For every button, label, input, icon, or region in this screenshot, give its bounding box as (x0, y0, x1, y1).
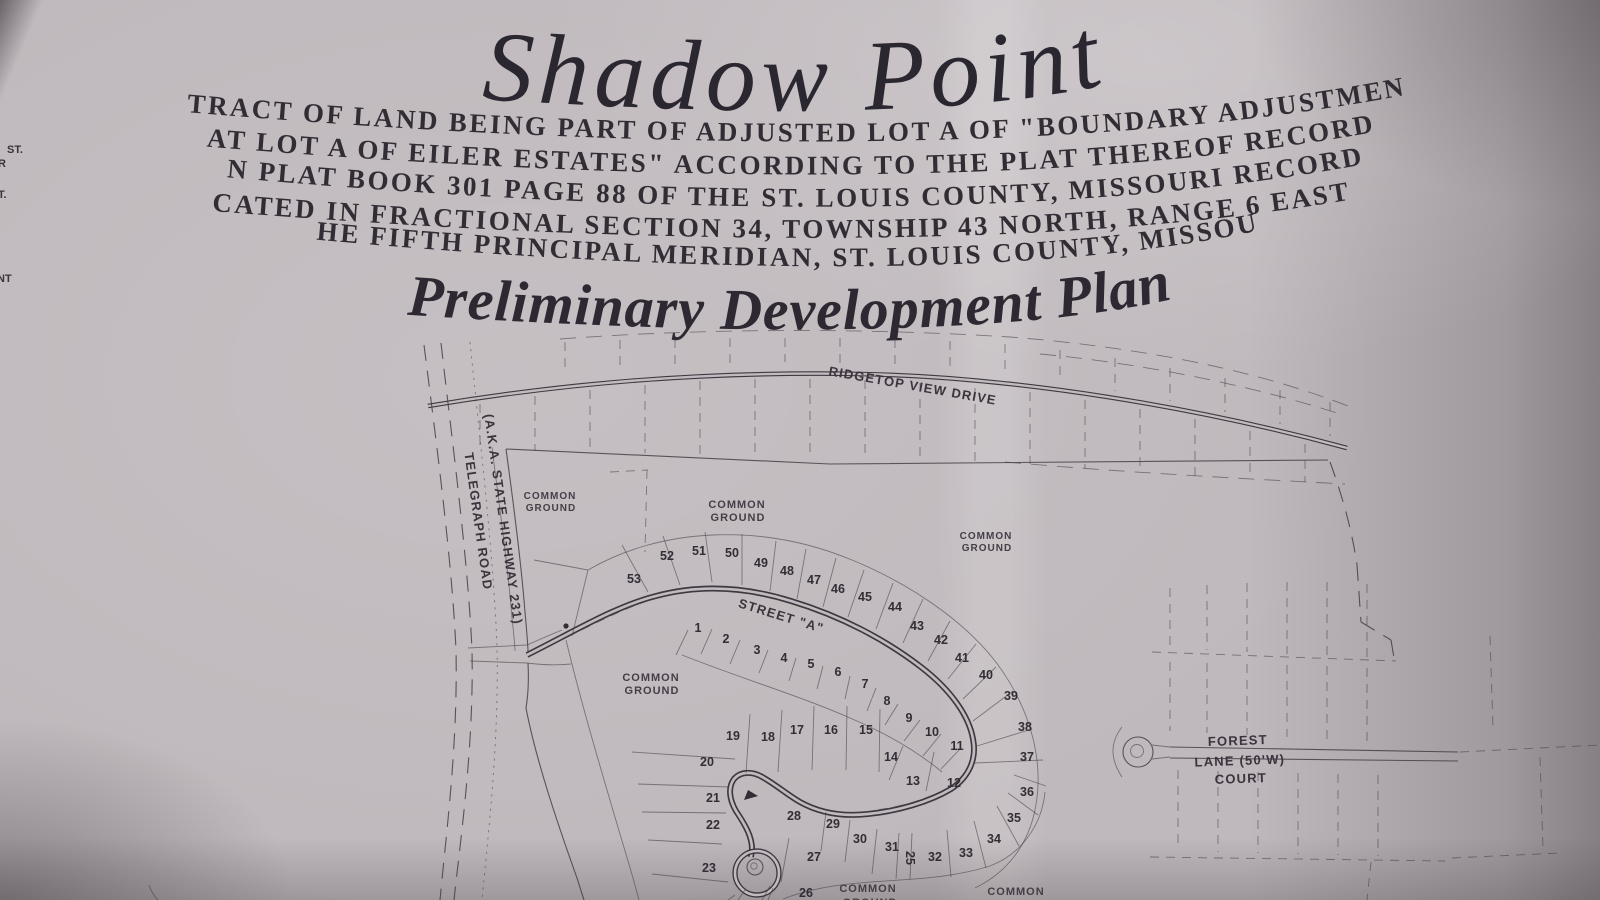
lot-number-28: 28 (787, 809, 801, 823)
cul-de-sac-island (747, 859, 763, 875)
street-dot-marking (563, 623, 568, 628)
lot-number-44: 44 (888, 600, 902, 614)
lot-number-36: 36 (1020, 785, 1034, 799)
cul-de-sac-island-center (751, 863, 757, 869)
forest-lane-court: FOREST LANE (50'W) COURT (1113, 582, 1600, 900)
lot-number-19: 19 (726, 729, 740, 743)
lot-number-33: 33 (959, 846, 973, 860)
lot-number-25: 25 (903, 851, 917, 865)
lot-number-47: 47 (807, 573, 821, 587)
lot-number-17: 17 (790, 723, 804, 737)
common-ground-ne-line2: GROUND (962, 543, 1012, 554)
lot-number-29: 29 (826, 817, 840, 831)
forest-lane-continuation (1460, 745, 1600, 752)
forest-grid-horizontal-upper (1152, 652, 1396, 661)
lot-number-40: 40 (979, 668, 993, 682)
plat-drawing-svg: Shadow Point A TRACT OF LAND BEING PART … (0, 0, 1600, 900)
far-right-faint-lines (1490, 636, 1543, 848)
lot-number-3: 3 (754, 643, 761, 657)
common-ground-south-line1: COMMON (839, 883, 896, 895)
lot-number-38: 38 (1018, 720, 1032, 734)
lot-number-50: 50 (725, 546, 739, 560)
forest-lane-label-2: LANE (50'W) (1194, 751, 1285, 769)
forest-grid-upper-tier2 (1170, 662, 1367, 741)
lot-number-53: 53 (627, 572, 641, 586)
lot-number-48: 48 (780, 564, 794, 578)
street-a-label: STREET "A" (737, 596, 826, 636)
telegraph-aka-label: (A.K.A. STATE HIGHWAY 231) (481, 413, 525, 626)
lot-number-35: 35 (1007, 811, 1021, 825)
boundary-north (506, 449, 1328, 464)
boundary-east-dashed (1330, 462, 1394, 658)
edge-fragment-r: R (0, 158, 6, 170)
title-block: Shadow Point A TRACT OF LAND BEING PART … (0, 0, 1408, 342)
edge-fragment-st: ST. (7, 144, 23, 156)
lot-number-30: 30 (853, 832, 867, 846)
common-ground-north-line1: COMMON (708, 499, 765, 511)
dividers-lots-1-11 (676, 629, 960, 769)
lot-number-37: 37 (1020, 750, 1034, 764)
lot-number-2: 2 (723, 632, 730, 646)
common-ground-north-line2: GROUND (711, 512, 766, 524)
dividers-lots-20-23 (632, 752, 735, 882)
lot-number-49: 49 (754, 556, 768, 570)
lot-number-18: 18 (761, 730, 775, 744)
lot-number-9: 9 (906, 711, 913, 725)
lot-number-43: 43 (910, 619, 924, 633)
forest-lane-label-1: FOREST (1208, 732, 1268, 749)
lot-number-42: 42 (934, 633, 948, 647)
rear-arc-north-fan (588, 535, 1038, 888)
common-ground-ne-line1: COMMON (960, 531, 1013, 542)
lot-number-14: 14 (884, 750, 898, 764)
common-ground-nw-line1: COMMON (524, 491, 577, 502)
lot-number-5: 5 (808, 657, 815, 671)
edge-fragment-t: T. (0, 189, 7, 201)
lot-number-7: 7 (862, 677, 869, 691)
lot-number-31: 31 (885, 840, 899, 854)
lot-number-51: 51 (692, 544, 706, 558)
lot-numbers: 1 2 3 4 5 6 7 8 9 10 11 12 13 14 15 16 1… (627, 544, 1034, 900)
street-marking (744, 790, 758, 800)
bottom-left-partial-line (149, 885, 158, 900)
street-a-entrance (468, 630, 571, 665)
common-ground-division-dash (610, 470, 648, 552)
forest-grid-bottom-lines (1150, 853, 1560, 900)
common-ground-west-line2: GROUND (625, 685, 680, 697)
lot-number-52: 52 (660, 549, 674, 563)
lot-number-41: 41 (955, 651, 969, 665)
lot-number-27: 27 (807, 850, 821, 864)
lot-number-32: 32 (928, 850, 942, 864)
boundary-west-lower (526, 663, 584, 900)
page-title: Shadow Point (480, 0, 1114, 133)
telegraph-road: TELEGRAPH ROAD (A.K.A. STATE HIGHWAY 231… (424, 342, 526, 900)
ridgetop-view-drive-label: RIDGETOP VIEW DRIVE (828, 363, 998, 407)
forest-lane-label-3: COURT (1214, 770, 1267, 787)
adjacent-rear-line (1005, 462, 1345, 484)
edge-fragment-nt: NT (0, 273, 12, 285)
lot-number-20: 20 (700, 755, 714, 769)
lot-number-6: 6 (835, 665, 842, 679)
photographed-plat-document: Shadow Point A TRACT OF LAND BEING PART … (0, 0, 1600, 900)
lot-number-16: 16 (824, 723, 838, 737)
lot-number-1: 1 (695, 621, 702, 635)
lot-number-12: 12 (947, 776, 961, 790)
forest-cul-de-sac-arcs (1113, 727, 1170, 777)
telegraph-lane-dash (441, 343, 472, 900)
edge-text-fragments: ST. R T. NT (0, 144, 23, 285)
lot-number-23: 23 (702, 861, 716, 875)
lot-number-26: 26 (799, 886, 813, 900)
lot-number-45: 45 (858, 590, 872, 604)
lot-number-11: 11 (950, 739, 963, 753)
forest-grid-upper-tier1 (1170, 582, 1367, 658)
lot-number-8: 8 (884, 694, 891, 708)
common-ground-nw-line2: GROUND (526, 503, 576, 514)
lot-number-46: 46 (831, 582, 845, 596)
ridgetop-south-lot-ticks (480, 379, 975, 461)
common-ground-west-line1: COMMON (622, 672, 679, 684)
lot-number-34: 34 (987, 832, 1001, 846)
lot-number-15: 15 (859, 723, 873, 737)
lot-number-39: 39 (1004, 689, 1018, 703)
lot-number-22: 22 (706, 818, 720, 832)
forest-cul-de-sac-inner (1131, 745, 1144, 758)
rear-arc-lots-1-11 (682, 655, 942, 772)
lot-number-10: 10 (925, 725, 939, 739)
common-ground-se-line1: COMMON (987, 886, 1044, 898)
forest-grid-lower (1178, 770, 1378, 856)
lot-number-13: 13 (906, 774, 920, 788)
lot-number-21: 21 (706, 791, 720, 805)
lot-number-4: 4 (781, 651, 788, 665)
forest-cul-de-sac-outer (1123, 737, 1153, 767)
